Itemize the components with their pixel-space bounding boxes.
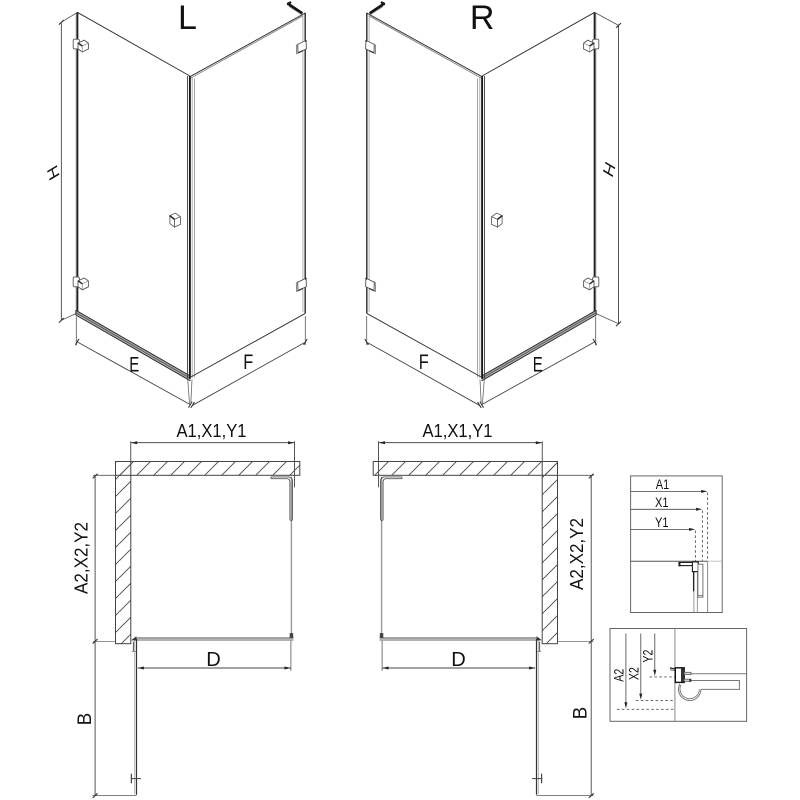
svg-text:D: D: [206, 648, 221, 671]
svg-text:A1,X1,Y1: A1,X1,Y1: [177, 420, 247, 441]
svg-text:A2: A2: [612, 669, 627, 682]
svg-text:A2,X2,Y2: A2,X2,Y2: [70, 522, 91, 594]
svg-text:X1: X1: [655, 495, 669, 510]
svg-text:F: F: [419, 351, 429, 374]
svg-text:E: E: [533, 354, 543, 377]
svg-text:D: D: [451, 648, 466, 671]
svg-text:F: F: [243, 351, 253, 374]
svg-text:E: E: [129, 354, 139, 377]
svg-text:Y2: Y2: [640, 650, 655, 663]
svg-text:Y1: Y1: [655, 515, 669, 530]
svg-text:X2: X2: [626, 667, 641, 680]
svg-text:A2,X2,Y2: A2,X2,Y2: [566, 518, 587, 590]
svg-text:L: L: [178, 0, 197, 37]
svg-text:R: R: [470, 0, 495, 37]
svg-text:B: B: [75, 713, 96, 726]
svg-text:B: B: [571, 707, 592, 720]
svg-text:A1: A1: [656, 477, 670, 492]
svg-text:A1,X1,Y1: A1,X1,Y1: [423, 420, 493, 441]
